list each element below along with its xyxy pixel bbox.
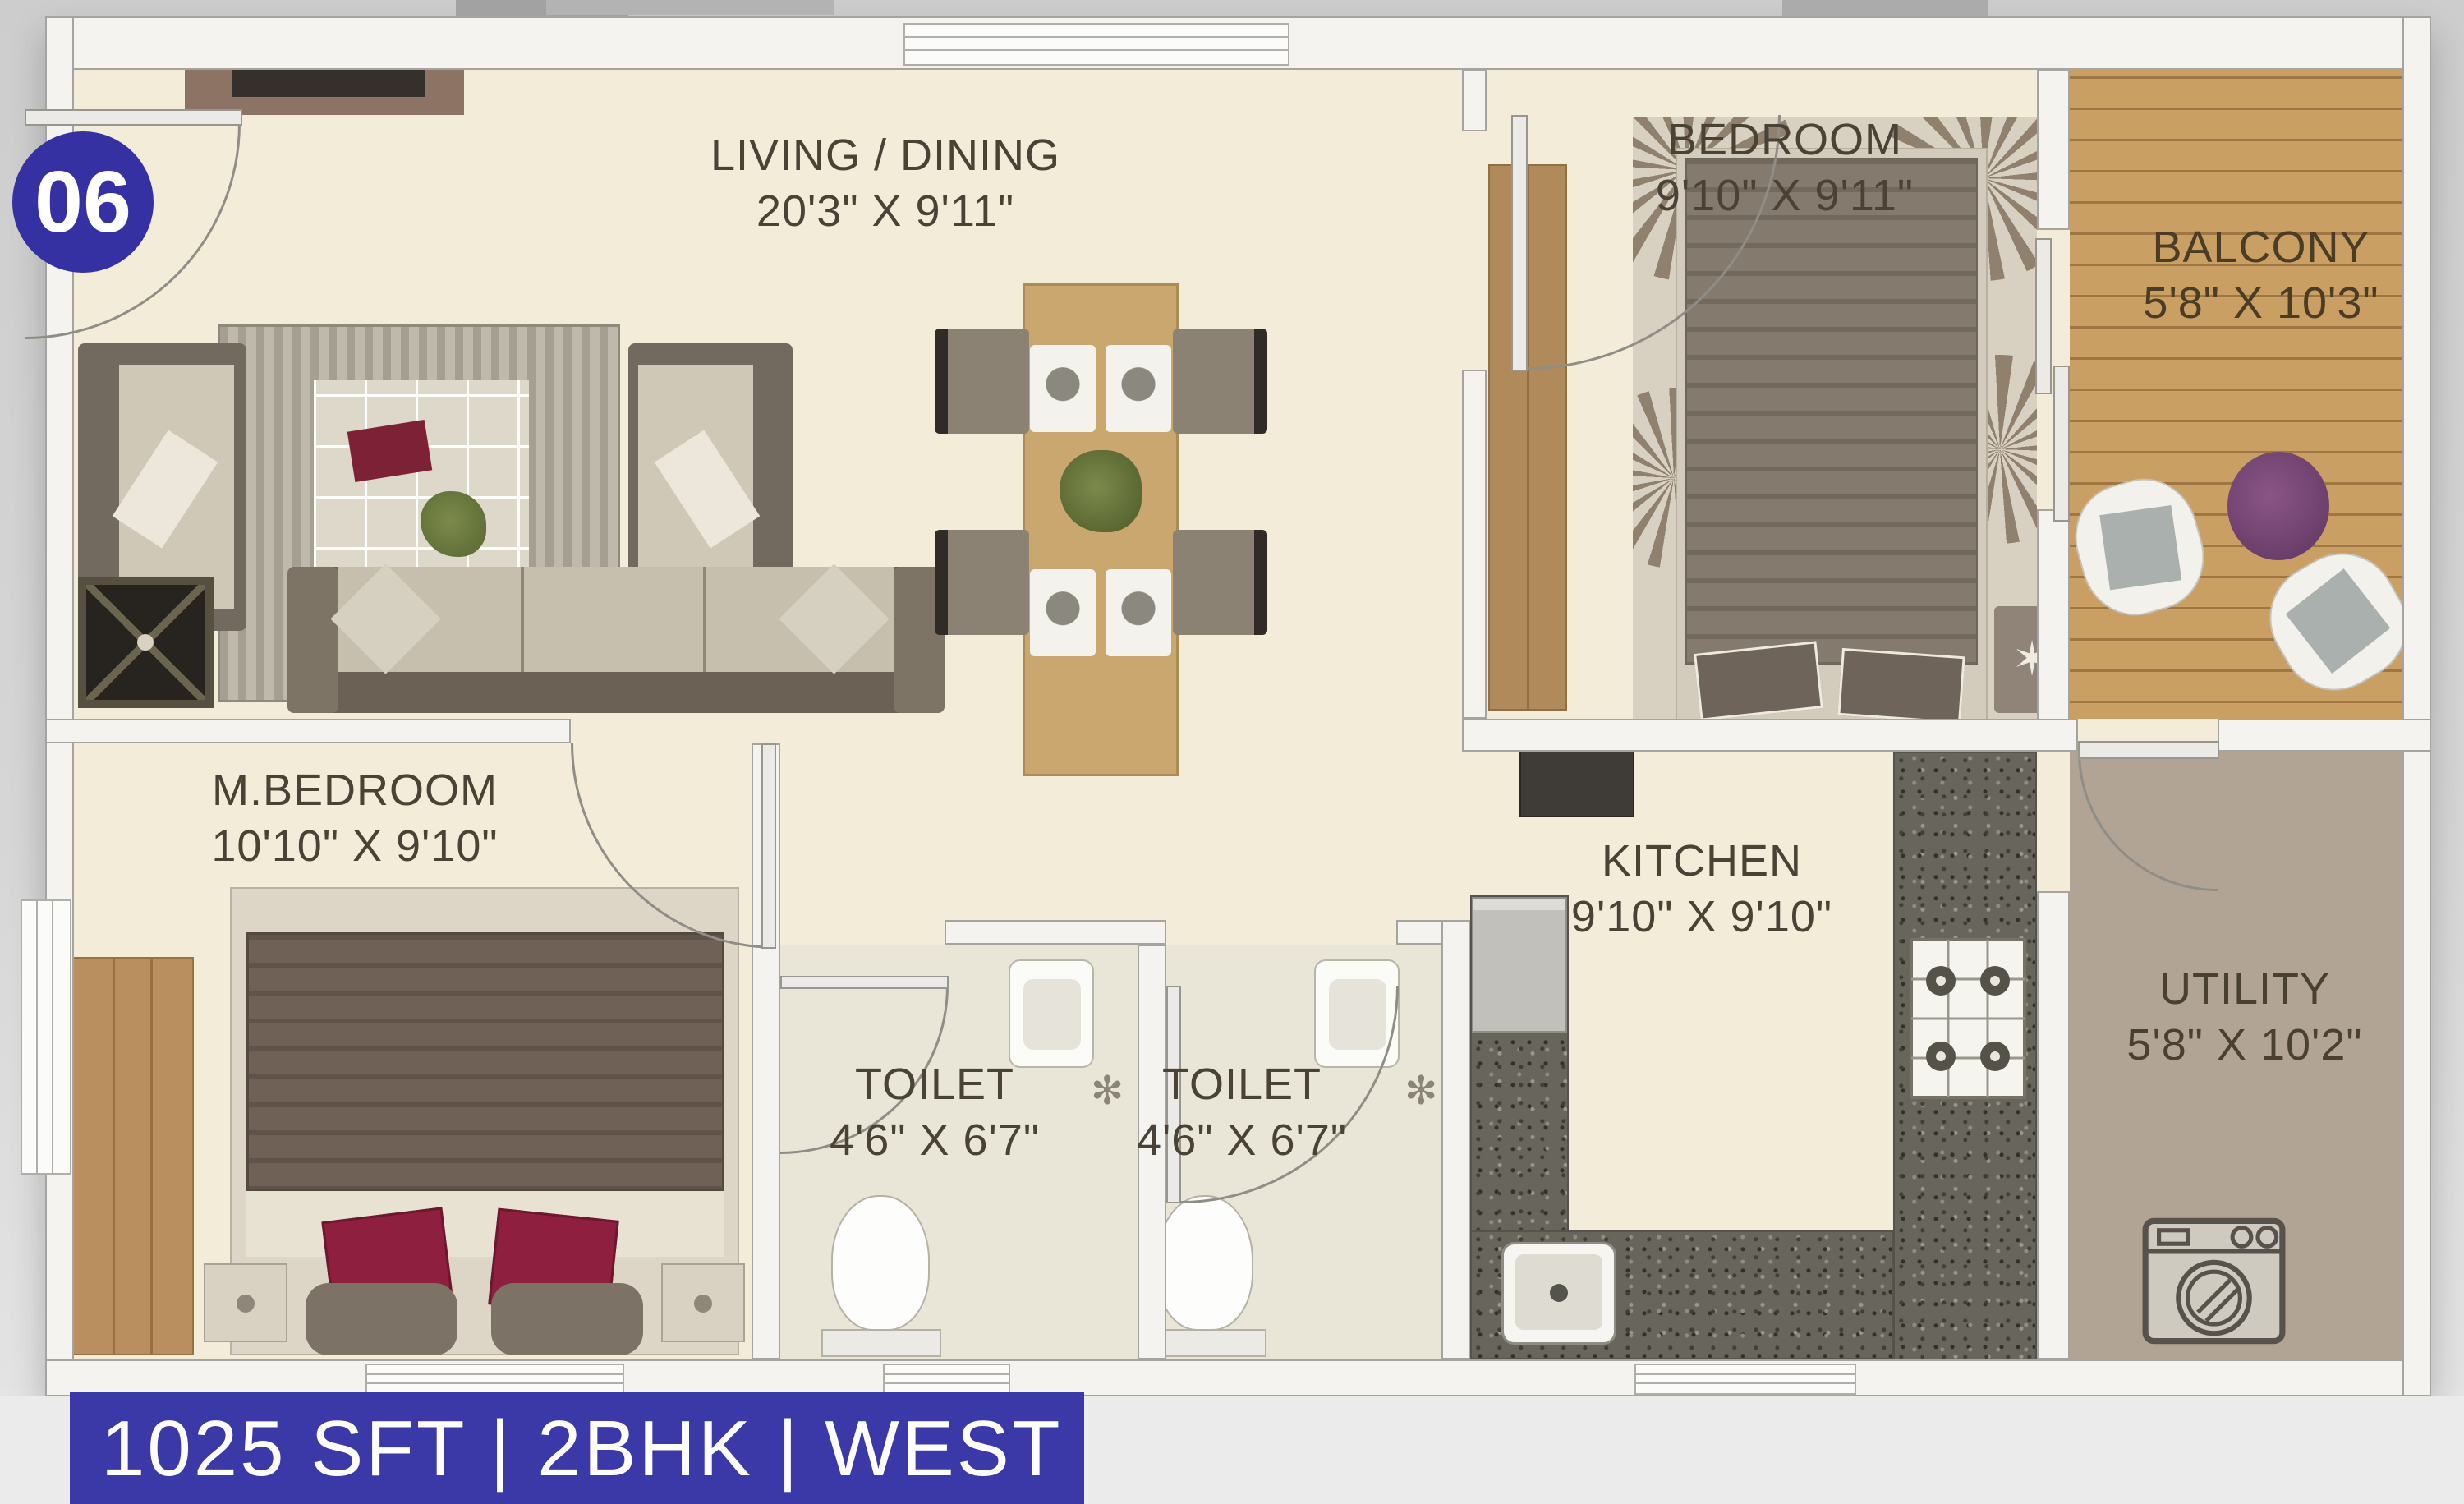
room-label-kitchen: KITCHEN 9'10" X 9'10" [1571,833,1832,945]
table-book [347,420,433,482]
room-label-utility: UTILITY 5'8" X 10'2" [2126,961,2362,1073]
wall-kitchen-utility [2037,891,2070,1359]
place-setting [1106,569,1171,656]
room-dims: 4'6" X 6'7" [1137,1112,1347,1168]
dining-chair [1173,329,1267,434]
dining-chair [935,530,1029,635]
room-dims: 4'6" X 6'7" [830,1112,1040,1168]
window-mbedroom-left [21,899,71,1175]
wall-outer-right [2402,16,2431,1396]
room-name: TOILET [1137,1056,1347,1112]
place-setting [1030,345,1096,432]
area-banner: 1025 SFT | 2BHK | WEST [70,1392,1084,1504]
nightstand-knob [237,1295,255,1313]
wall-living-bedroom-b [1462,370,1487,719]
nightstand [204,1263,287,1342]
toilet-wc [1156,1195,1253,1331]
room-name: LIVING / DINING [710,127,1060,183]
wall-balcony-utility [2218,719,2431,752]
kitchen-fridge [1472,897,1567,1033]
flower-icon: ✻ [1404,1068,1437,1114]
unit-number-badge: 06 [12,131,154,273]
chair-seat [2286,568,2391,674]
room-name: M.BEDROOM [211,762,498,818]
dining-chair [1173,530,1267,635]
basin-bowl [1023,979,1081,1050]
floorplan-canvas: ✶ ✻ ✻ [0,0,2464,1504]
chair-seat [2099,505,2181,590]
exterior-duct [546,0,834,15]
room-label-living-dining: LIVING / DINING 20'3" X 9'11" [710,127,1060,239]
room-dims: 9'10" X 9'11" [1656,168,1914,223]
room-label-mbedroom: M.BEDROOM 10'10" X 9'10" [211,762,498,874]
room-dims: 20'3" X 9'11" [710,183,1060,239]
toilet-tank [821,1329,941,1357]
washing-machine-icon [2142,1217,2286,1345]
dining-chair [935,329,1029,434]
side-table-left [78,577,214,708]
toilet-wc [831,1195,930,1331]
room-label-bedroom: BEDROOM 9'10" X 9'11" [1656,112,1914,223]
kitchen-appliance [1519,743,1634,817]
sofa-armrest-left [287,567,338,713]
kitchen-sink [1501,1242,1616,1345]
room-label-balcony: BALCONY 5'8" X 10'3" [2143,219,2379,331]
window-toilet1-bottom [883,1364,1010,1395]
room-name: KITCHEN [1571,833,1832,889]
table-plant [421,491,486,557]
nightstand-knob [694,1295,712,1313]
room-dims: 5'8" X 10'2" [2126,1017,2362,1073]
door-leaf-mbedroom [761,743,776,949]
sink-drain [1550,1284,1568,1302]
room-name: TOILET [830,1056,1040,1112]
wall-toilet2-kitchen [1441,920,1470,1359]
wall-living-mbedroom [45,719,571,743]
bedroom-pillow [1837,648,1965,724]
flower-icon: ✻ [1091,1068,1124,1114]
nightstand [661,1263,745,1342]
centerpiece-plant [1060,450,1142,532]
kitchen-stove [1910,938,2026,1099]
washbasin [1009,959,1094,1068]
balcony-pouf [2227,452,2329,560]
place-setting [1030,569,1096,656]
window-mbedroom-bottom [365,1364,624,1395]
wall-bedroom-bottom [1462,719,2078,752]
dining-table [1023,283,1179,776]
place-setting [1106,345,1171,432]
mbedroom-sheet [246,1191,724,1257]
mbedroom-wardrobe [72,957,194,1355]
mbedroom-cushion [491,1283,643,1355]
wall-bedroom-balcony-b [2037,509,2070,743]
room-label-toilet1: TOILET 4'6" X 6'7" [830,1056,1040,1168]
sliding-door-balcony-panel-2 [2053,366,2070,522]
room-label-toilet2: TOILET 4'6" X 6'7" [1137,1056,1347,1168]
wall-toilets-top-a [945,920,1166,945]
room-dims: 9'10" X 9'10" [1571,889,1832,945]
bedroom-pillow [1694,641,1823,720]
wall-living-bedroom-a [1462,70,1487,131]
table-lamp [137,634,154,651]
room-name: BEDROOM [1656,112,1914,168]
wall-bedroom-balcony-a [2037,70,2070,230]
room-name: BALCONY [2143,219,2379,275]
door-leaf-bedroom [1511,115,1528,371]
window-living-top [903,23,1289,66]
door-leaf-utility [2078,741,2219,759]
door-leaf-toilet1 [780,976,949,989]
room-dims: 5'8" X 10'3" [2143,275,2379,331]
room-name: UTILITY [2126,961,2362,1017]
sliding-door-balcony-panel-1 [2035,238,2052,394]
exterior-duct [1782,0,1988,18]
door-leaf-entrance [25,109,242,126]
room-dims: 10'10" X 9'10" [211,818,498,874]
mbedroom-cushion [306,1283,457,1355]
mbedroom-blanket [246,932,724,1191]
window-kitchen-bottom [1634,1364,1856,1395]
sofa [287,567,945,713]
